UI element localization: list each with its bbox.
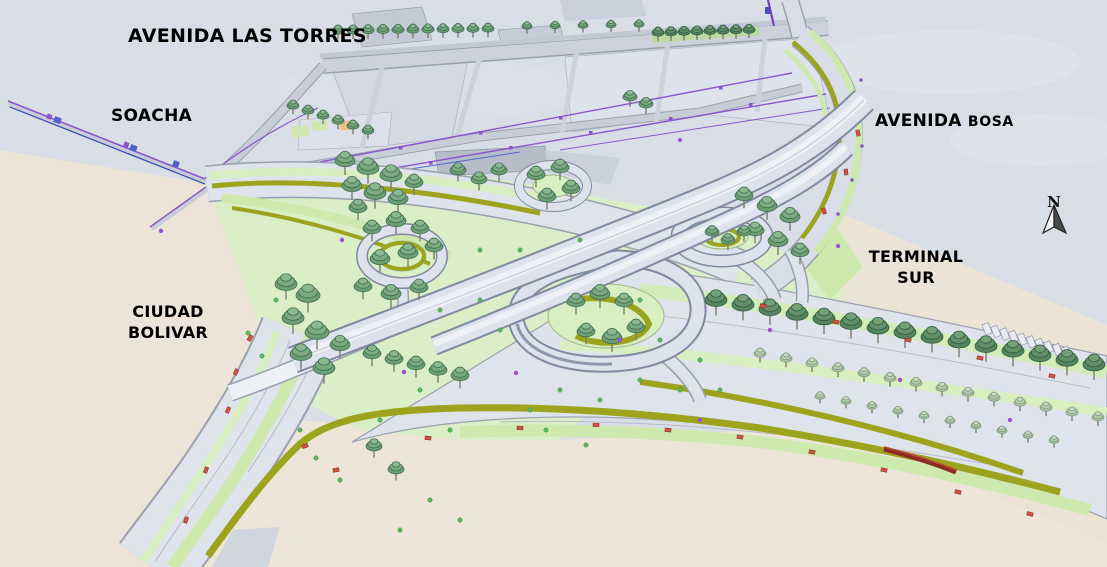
site-plan-screenshot: N AVENIDA LAS TORRES SOACHA AVENIDA BOSA… bbox=[0, 0, 1107, 567]
map-label-avenida-bosa: AVENIDA BOSA bbox=[875, 111, 1014, 131]
map-label-terminal-sur: TERMINAL SUR bbox=[866, 246, 966, 288]
map-label-ciudad-bolivar: CIUDAD BOLIVAR bbox=[118, 301, 218, 343]
map-label-avenida-las-torres: AVENIDA LAS TORRES bbox=[128, 25, 367, 47]
map-label-soacha: SOACHA bbox=[111, 106, 192, 126]
